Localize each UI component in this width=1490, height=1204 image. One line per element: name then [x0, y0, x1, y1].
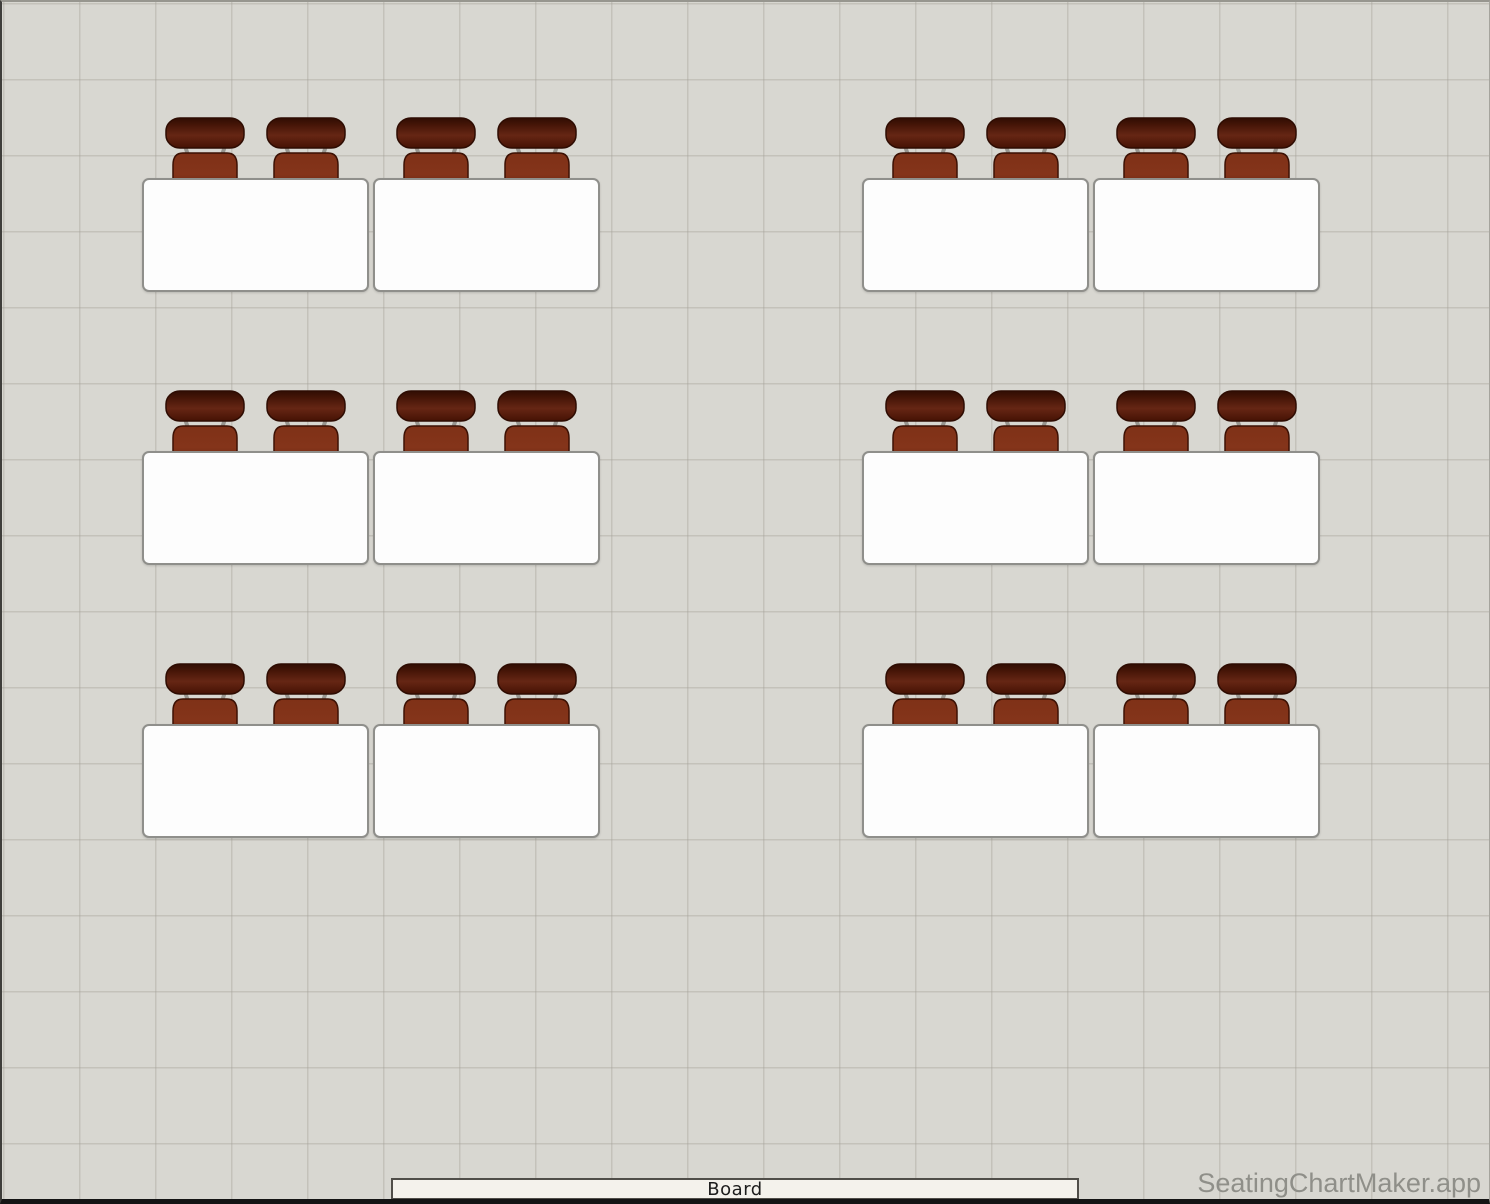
desk[interactable]: [1093, 178, 1320, 292]
desk[interactable]: [142, 178, 369, 292]
board[interactable]: Board: [391, 1178, 1079, 1200]
desk[interactable]: [862, 178, 1089, 292]
desk-group: [373, 115, 600, 292]
board-label: Board: [707, 1179, 762, 1200]
desk[interactable]: [862, 724, 1089, 838]
desk-group: [1093, 115, 1320, 292]
desk[interactable]: [373, 451, 600, 565]
desk-group: [142, 388, 369, 565]
desk[interactable]: [1093, 724, 1320, 838]
desk-group: [142, 661, 369, 838]
classroom-canvas[interactable]: Board SeatingChartMaker.app: [0, 0, 1490, 1204]
watermark: SeatingChartMaker.app: [1197, 1168, 1481, 1199]
desk-group: [1093, 661, 1320, 838]
desk[interactable]: [142, 724, 369, 838]
desk-group: [373, 661, 600, 838]
desk[interactable]: [373, 178, 600, 292]
desk-group: [142, 115, 369, 292]
desk-group: [862, 115, 1089, 292]
desk[interactable]: [862, 451, 1089, 565]
desk[interactable]: [1093, 451, 1320, 565]
desk-group: [1093, 388, 1320, 565]
desk-group: [862, 661, 1089, 838]
desk-group: [862, 388, 1089, 565]
desk[interactable]: [373, 724, 600, 838]
desk-group: [373, 388, 600, 565]
desk[interactable]: [142, 451, 369, 565]
